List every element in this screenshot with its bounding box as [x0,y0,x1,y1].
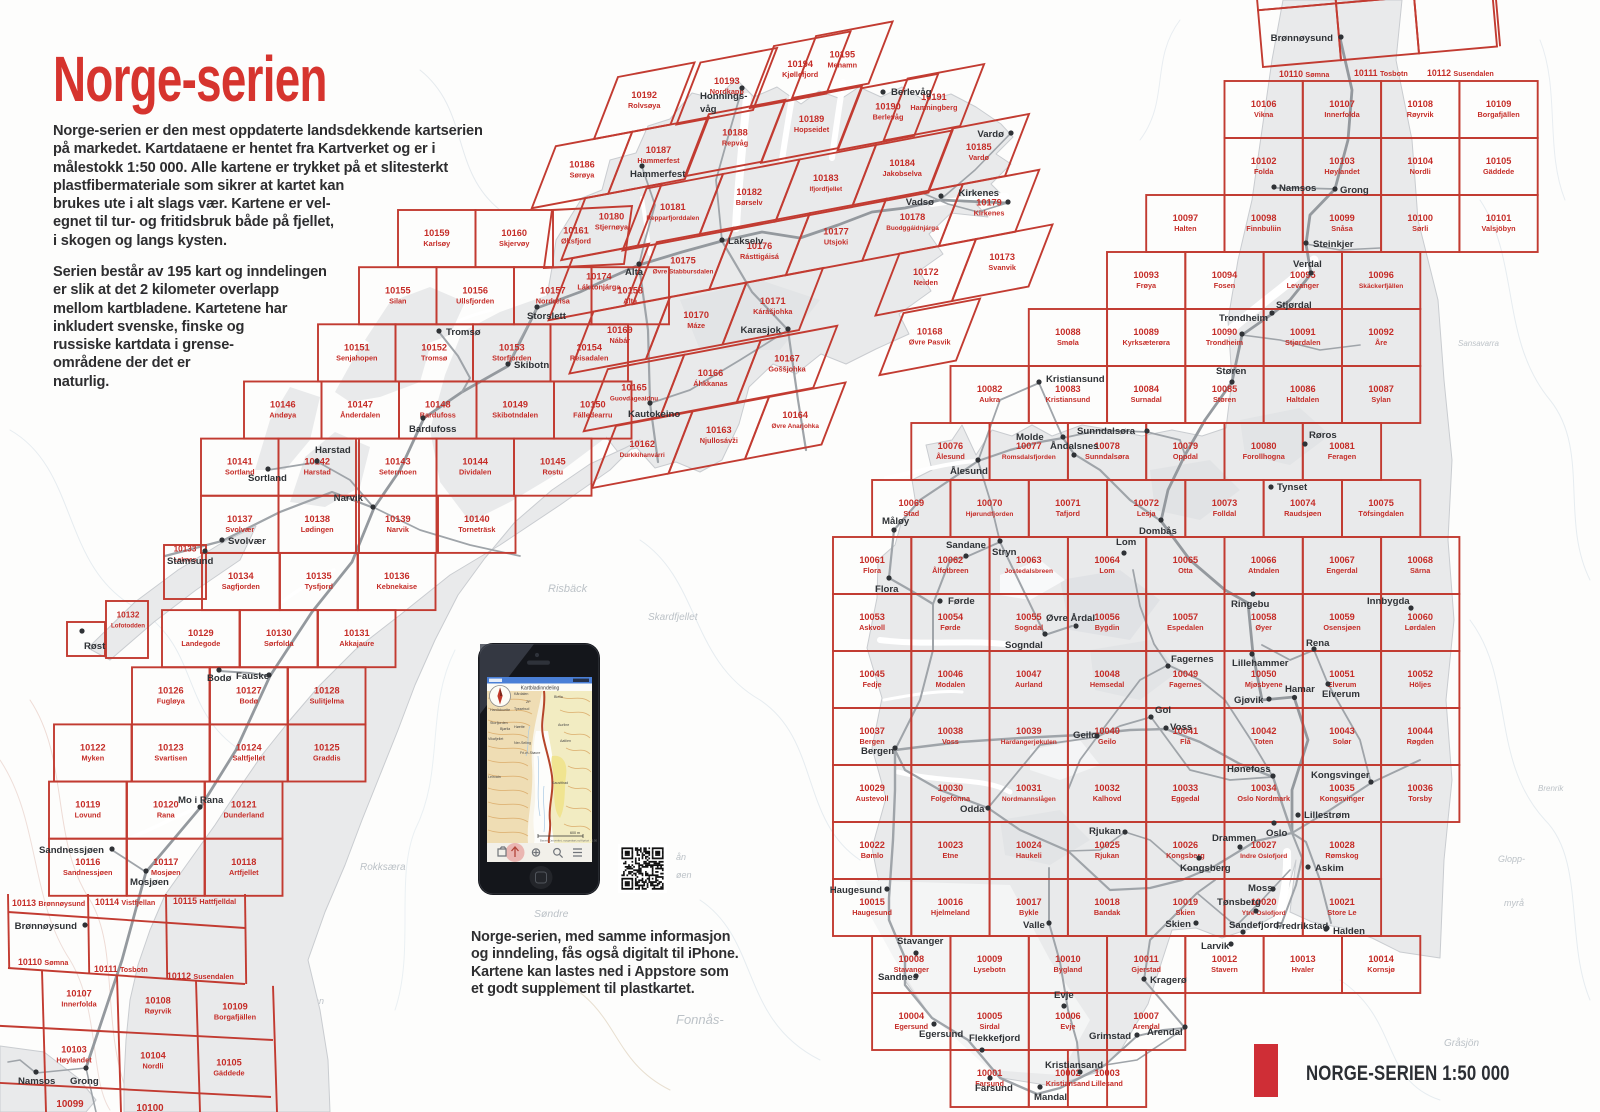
svg-text:10165: 10165 [621,383,647,393]
svg-text:10118: 10118 [231,857,256,867]
svg-text:10128: 10128 [314,685,340,695]
svg-text:10112 Susendalen: 10112 Susendalen [1427,68,1494,78]
svg-text:10021: 10021 [1329,897,1355,907]
svg-text:10117: 10117 [153,857,178,867]
svg-text:Austevoll: Austevoll [856,794,889,803]
svg-text:10033: 10033 [1173,783,1199,793]
svg-text:10109: 10109 [1486,99,1512,109]
svg-text:10093: 10093 [1133,270,1159,280]
svg-text:Oppdal: Oppdal [1173,452,1198,461]
svg-text:Store Le: Store Le [1327,908,1356,917]
svg-text:Vardø: Vardø [969,153,990,162]
svg-text:Fonnås-: Fonnås- [676,1012,724,1027]
svg-text:Skjervøy: Skjervøy [499,239,530,248]
svg-text:10024: 10024 [1016,840,1042,850]
svg-text:Sunndalsøra: Sunndalsøra [1085,452,1130,461]
svg-text:Kalhovd: Kalhovd [1093,794,1122,803]
svg-text:10038: 10038 [938,726,964,736]
svg-text:10143: 10143 [385,457,411,467]
svg-text:10103: 10103 [61,1045,87,1055]
svg-text:Lom: Lom [1116,537,1136,548]
svg-text:Mo i Rana: Mo i Rana [178,795,224,806]
svg-text:Nordli: Nordli [142,1062,163,1071]
svg-text:10089: 10089 [1133,327,1159,337]
svg-text:Førde: Førde [940,623,960,632]
svg-text:10108: 10108 [145,996,171,1006]
svg-text:10149: 10149 [502,400,528,410]
svg-text:10073: 10073 [1212,498,1238,508]
svg-text:Svanvik: Svanvik [988,263,1017,272]
svg-text:10094: 10094 [1212,270,1238,280]
svg-text:10132: 10132 [117,611,140,620]
svg-text:Kristiansund: Kristiansund [1046,395,1091,404]
svg-text:Gol: Gol [1155,705,1171,716]
svg-text:Sansavarra: Sansavarra [1458,339,1499,348]
svg-text:10032: 10032 [1094,783,1120,793]
svg-text:Brenrik: Brenrik [1538,784,1564,793]
svg-text:10140: 10140 [464,514,490,524]
svg-text:Røgden: Røgden [1407,737,1434,746]
svg-text:Innerfolda: Innerfolda [61,1000,97,1009]
svg-text:10155: 10155 [385,285,411,295]
svg-text:Sandnessjøen: Sandnessjøen [63,868,112,877]
svg-text:10195: 10195 [830,49,856,59]
svg-text:Grimstad: Grimstad [1089,1031,1131,1042]
svg-text:Ånderdalen: Ånderdalen [340,411,380,420]
svg-text:Fálledearru: Fálledearru [573,411,612,420]
svg-text:10171: 10171 [760,296,786,306]
svg-text:10066: 10066 [1251,555,1277,565]
svg-text:10163: 10163 [706,425,732,435]
svg-text:Sagfjorden: Sagfjorden [222,582,260,591]
svg-text:10049: 10049 [1173,669,1199,679]
svg-text:Utsjoki: Utsjoki [824,238,848,247]
svg-text:Ullsfjorden: Ullsfjorden [456,296,494,305]
svg-text:Kaustthad: Kaustthad [552,781,568,785]
svg-text:Rokksæra: Rokksæra [360,862,406,873]
svg-text:Akkajaure: Akkajaure [339,639,374,648]
svg-text:10144: 10144 [462,457,488,467]
svg-text:10023: 10023 [938,840,964,850]
svg-text:Nordmannslågen: Nordmannslågen [1002,795,1056,803]
svg-text:Lakselv: Lakselv [728,236,764,247]
svg-text:10016: 10016 [938,897,964,907]
svg-text:Gäddede: Gäddede [213,1069,244,1078]
svg-text:Aatlien: Aatlien [560,739,571,743]
svg-text:10123: 10123 [158,743,184,753]
svg-text:10152: 10152 [421,342,447,352]
svg-text:10055: 10055 [1016,612,1042,622]
svg-text:Folgefonna: Folgefonna [931,794,971,803]
svg-text:Åndalsnes: Åndalsnes [1050,441,1099,452]
svg-text:Måløy: Måløy [882,516,910,527]
svg-text:10018: 10018 [1094,897,1120,907]
svg-text:10135: 10135 [306,571,332,581]
svg-text:10133: 10133 [174,545,197,554]
svg-text:Rolvsøya: Rolvsøya [628,101,661,110]
svg-text:Bodø: Bodø [207,673,232,684]
svg-text:Ifjordfjellet: Ifjordfjellet [809,186,843,193]
svg-text:10060: 10060 [1407,612,1433,622]
svg-text:Haltdalen: Haltdalen [1286,395,1319,404]
svg-text:Silan: Silan [389,296,406,305]
svg-text:Mosjøen: Mosjøen [151,868,181,877]
svg-text:Bandak: Bandak [1094,908,1121,917]
svg-text:10008: 10008 [899,954,925,964]
svg-text:10172: 10172 [913,267,939,277]
svg-text:10043: 10043 [1329,726,1355,736]
svg-text:Töfsingdalen: Töfsingdalen [1358,509,1403,518]
svg-text:Máze: Máze [687,321,705,330]
svg-text:Jostedalsbreen: Jostedalsbreen [1005,568,1053,575]
svg-text:Nordli: Nordli [1410,167,1431,176]
svg-text:10137: 10137 [227,514,253,524]
svg-text:Bømlo: Bømlo [861,851,884,860]
svg-text:10014: 10014 [1368,954,1394,964]
svg-text:Buodggáidnjárga: Buodggáidnjárga [886,225,939,232]
svg-text:10080: 10080 [1251,441,1277,451]
svg-text:10109: 10109 [222,1002,248,1012]
svg-text:Skien: Skien [1165,919,1191,930]
svg-text:Folldal: Folldal [1213,509,1237,518]
svg-text:Tysfjord: Tysfjord [305,582,333,591]
svg-text:600 m: 600 m [570,831,580,835]
svg-text:Rjukan: Rjukan [1095,851,1119,860]
svg-text:Støren: Støren [1213,395,1236,404]
svg-text:Ytre Oslofjord: Ytre Oslofjord [1242,910,1286,917]
svg-text:10162: 10162 [629,439,655,449]
svg-text:Steinkjer: Steinkjer [1313,239,1354,250]
svg-text:Sørli: Sørli [1412,224,1428,233]
svg-text:Røyrvik: Røyrvik [1407,110,1435,119]
svg-text:10022: 10022 [859,840,885,850]
svg-text:Andøya: Andøya [269,411,297,420]
svg-text:Børselv: Børselv [736,198,764,207]
svg-text:Brønnøysund: Brønnøysund [15,921,77,932]
svg-text:Kebnekaise: Kebnekaise [377,582,418,591]
svg-text:10157: 10157 [540,285,566,295]
svg-text:10166: 10166 [698,368,724,378]
svg-text:Halden: Halden [1333,926,1365,937]
svg-text:Røst: Røst [84,641,106,652]
svg-text:Oslo Nordmark: Oslo Nordmark [1237,794,1291,803]
svg-text:10026: 10026 [1173,840,1199,850]
svg-text:10101: 10101 [1486,213,1512,223]
svg-text:Reisadalen: Reisadalen [570,353,609,362]
svg-text:10045: 10045 [859,669,885,679]
svg-text:Glopp-: Glopp- [1498,854,1525,864]
svg-text:Storslett: Storslett [527,311,567,322]
svg-text:Engerdal: Engerdal [1326,566,1357,575]
svg-text:10057: 10057 [1173,612,1199,622]
svg-text:10036: 10036 [1407,783,1433,793]
svg-text:ZP: ZP [526,700,531,704]
svg-text:Tromsø: Tromsø [421,353,448,362]
svg-text:10185: 10185 [966,142,992,152]
svg-text:10050: 10050 [1251,669,1277,679]
svg-text:Solør: Solør [1333,737,1352,746]
svg-text:Saltfjellet: Saltfjellet [233,754,266,763]
svg-text:Goššjohka: Goššjohka [768,365,806,374]
svg-text:10103: 10103 [1329,156,1355,166]
svg-text:Dombås: Dombås [1139,526,1177,537]
svg-text:10100: 10100 [1407,213,1433,223]
svg-text:Åre: Åre [1375,338,1387,347]
svg-text:Verdal: Verdal [1293,259,1322,270]
svg-text:10139: 10139 [385,514,411,524]
svg-text:Aurland: Aurland [1015,680,1043,689]
svg-text:10047: 10047 [1016,669,1042,679]
svg-text:Stjørdalen: Stjørdalen [1285,338,1321,347]
svg-text:10065: 10065 [1173,555,1199,565]
svg-text:Leirvatn: Leirvatn [488,775,501,779]
svg-text:Etne: Etne [942,851,958,860]
svg-text:10136: 10136 [384,571,410,581]
svg-text:10129: 10129 [188,628,214,638]
svg-text:Haukeli: Haukeli [1016,851,1042,860]
svg-text:Gråsjön: Gråsjön [1444,1037,1479,1049]
svg-text:10034: 10034 [1251,783,1277,793]
svg-text:10058: 10058 [1251,612,1277,622]
svg-text:Aurline: Aurline [558,723,569,727]
svg-text:Vikna: Vikna [1254,110,1274,119]
svg-text:10107: 10107 [66,989,92,999]
svg-text:10096: 10096 [1368,270,1394,280]
svg-text:Elverum: Elverum [1322,689,1360,700]
svg-text:10168: 10168 [917,326,943,336]
svg-text:Hjørundfjorden: Hjørundfjorden [966,511,1014,518]
svg-text:10097: 10097 [1173,213,1199,223]
svg-text:Berlevåg: Berlevåg [873,113,904,122]
svg-text:10116: 10116 [75,857,100,867]
svg-text:Bodø: Bodø [239,696,258,705]
svg-text:Stjørdal: Stjørdal [1276,300,1312,311]
svg-text:Sørøya: Sørøya [570,171,596,180]
svg-text:10011: 10011 [1134,954,1159,964]
svg-text:Hemsedal: Hemsedal [1090,680,1124,689]
svg-text:Rjukan: Rjukan [1089,826,1121,837]
svg-text:Kárášjohka: Kárášjohka [753,307,793,316]
svg-text:10013: 10013 [1290,954,1316,964]
svg-text:Osensjøen: Osensjøen [1323,623,1360,632]
svg-text:Skibotn: Skibotn [514,360,549,371]
svg-text:10125: 10125 [314,743,340,753]
svg-text:Stjernøya: Stjernøya [595,222,629,231]
svg-text:Myken: Myken [81,754,104,763]
svg-text:Sortland: Sortland [248,473,287,484]
svg-text:10037: 10037 [859,726,885,736]
svg-text:Rena: Rena [1306,638,1330,649]
svg-text:Bygdin: Bygdin [1095,623,1120,632]
svg-text:Skäckerfjällen: Skäckerfjällen [1359,283,1403,290]
svg-text:Kirkenes: Kirkenes [958,188,999,199]
svg-text:Kjøllefjord: Kjøllefjord [782,70,818,79]
svg-text:10147: 10147 [347,400,373,410]
svg-text:Mehamn: Mehamn [827,60,857,69]
svg-text:Hamningberg: Hamningberg [910,103,957,112]
svg-text:10069: 10069 [899,498,925,508]
svg-text:Støren: Støren [1216,366,1247,377]
svg-text:Namsos: Namsos [18,1076,55,1087]
svg-text:10193: 10193 [714,76,740,86]
svg-text:10126: 10126 [158,685,184,695]
svg-text:Evje: Evje [1054,990,1074,1001]
svg-text:Høylandet: Høylandet [1324,167,1360,176]
svg-text:Halten: Halten [1174,224,1196,233]
svg-text:10006: 10006 [1055,1011,1081,1021]
svg-text:10061: 10061 [859,555,885,565]
svg-text:Narvik: Narvik [334,493,364,504]
svg-text:10108: 10108 [1407,99,1433,109]
svg-text:Landegode: Landegode [181,639,220,648]
svg-text:Bykle: Bykle [1019,908,1038,917]
svg-text:Sandnessjøen: Sandnessjøen [39,845,104,856]
svg-text:Sandane: Sandane [946,540,986,551]
svg-text:Stryn: Stryn [992,547,1017,558]
svg-text:10028: 10028 [1329,840,1355,850]
svg-text:Gjerstad: Gjerstad [1131,965,1161,974]
svg-text:10170: 10170 [683,310,709,320]
svg-text:Brønnøysund: Brønnøysund [1271,33,1333,44]
svg-text:Biella: Biella [554,695,563,699]
svg-text:10051: 10051 [1329,669,1355,679]
svg-text:Karasjok: Karasjok [740,325,781,336]
svg-text:Ålfotbreen: Ålfotbreen [932,566,969,575]
svg-text:10076: 10076 [938,441,964,451]
svg-text:10187: 10187 [646,145,672,155]
svg-text:Kirkenes: Kirkenes [974,209,1005,218]
svg-text:Ringebu: Ringebu [1231,599,1270,610]
svg-text:Mosjøen: Mosjøen [130,877,169,888]
svg-text:10111 Tosbotn: 10111 Tosbotn [94,964,148,974]
svg-text:10015: 10015 [859,897,885,907]
svg-text:10188: 10188 [722,128,748,138]
svg-text:Grong: Grong [70,1076,99,1087]
svg-text:10141: 10141 [227,457,253,467]
svg-text:10025: 10025 [1094,840,1120,850]
svg-text:10106: 10106 [1251,99,1277,109]
svg-text:Lofotodden: Lofotodden [111,623,145,630]
svg-text:Sandnes: Sandnes [878,972,918,983]
svg-text:Jakobselva: Jakobselva [883,169,923,178]
svg-text:Folda: Folda [1254,167,1274,176]
svg-text:Indre Oslofjord: Indre Oslofjord [1240,853,1287,860]
svg-text:Njullosávži: Njullosávži [700,436,738,445]
svg-text:10145: 10145 [540,457,566,467]
svg-text:10127: 10127 [236,685,262,695]
svg-text:10167: 10167 [774,354,800,364]
svg-text:Svolvær: Svolvær [228,536,266,547]
svg-text:Namsos: Namsos [1279,183,1316,194]
svg-text:Molde: Molde [1016,432,1044,443]
svg-text:Gjøvik: Gjøvik [1234,695,1264,706]
svg-text:Nábár: Nábár [609,336,630,345]
svg-text:Rostu: Rostu [542,468,563,477]
svg-text:10180: 10180 [599,211,625,221]
svg-text:Førde: Førde [948,596,975,607]
svg-text:10177: 10177 [823,227,849,237]
svg-text:10150: 10150 [580,400,606,410]
svg-text:10072: 10072 [1133,498,1159,508]
svg-text:Kornsjø: Kornsjø [1367,965,1395,974]
svg-text:Røyrvik: Røyrvik [145,1007,173,1016]
svg-text:10175: 10175 [670,256,696,266]
svg-text:10074: 10074 [1290,498,1316,508]
svg-text:10113 Brønnøysund: 10113 Brønnøysund [12,898,85,908]
svg-text:Skien: Skien [1176,908,1195,917]
svg-text:Elverum: Elverum [1328,680,1357,689]
svg-text:10099: 10099 [1329,213,1355,223]
svg-text:10148: 10148 [425,400,451,410]
svg-text:Höljes: Höljes [1409,680,1431,689]
svg-text:10153: 10153 [499,342,525,352]
svg-text:10115 Hattfjelldal: 10115 Hattfjelldal [173,896,236,906]
svg-text:Harstad: Harstad [304,468,331,477]
svg-text:Rásttigáisá: Rásttigáisá [740,252,780,261]
svg-text:Toten: Toten [1254,737,1273,746]
svg-text:Hardangerjøkulen: Hardangerjøkulen [1001,739,1057,746]
svg-text:Lillestrøm: Lillestrøm [1304,810,1350,821]
svg-text:Valsjöbyn: Valsjöbyn [1482,224,1516,233]
svg-text:Kristiansand: Kristiansand [1045,1060,1103,1071]
svg-text:Svolvær: Svolvær [225,525,254,534]
svg-text:10017: 10017 [1016,897,1042,907]
svg-text:Espedalen: Espedalen [1167,623,1204,632]
svg-text:Voss: Voss [1170,722,1192,733]
svg-text:10012: 10012 [1212,954,1238,964]
svg-text:Nordreisa: Nordreisa [536,296,571,305]
svg-text:10090: 10090 [1212,327,1238,337]
svg-text:10182: 10182 [736,187,762,197]
svg-text:Hammerfest: Hammerfest [637,156,680,165]
svg-text:Ner-Seling: Ner-Seling [514,741,531,745]
svg-text:Bjørlia: Bjørlia [500,727,510,731]
svg-text:Atndalen: Atndalen [1248,566,1279,575]
svg-text:Torsby: Torsby [1408,794,1433,803]
svg-text:Sunndalsøra: Sunndalsøra [1077,426,1136,437]
svg-text:Hønefoss: Hønefoss [1227,764,1271,775]
svg-text:Neiden: Neiden [914,278,938,287]
svg-text:Sogndal: Sogndal [1014,623,1043,632]
svg-text:Øvre Pasvik: Øvre Pasvik [909,337,952,346]
svg-text:10179: 10179 [976,198,1002,208]
svg-text:Fredrikstad: Fredrikstad [1276,921,1328,932]
svg-text:10079: 10079 [1173,441,1199,451]
svg-text:Øvre Stabbursdalen: Øvre Stabbursdalen [653,269,714,276]
svg-text:Stamsund: Stamsund [167,556,214,567]
svg-text:10119: 10119 [75,800,100,810]
svg-text:Senjahopen: Senjahopen [336,353,377,362]
svg-text:Odda: Odda [960,804,985,815]
svg-text:Feragen: Feragen [1328,452,1356,461]
svg-text:Kongsberg: Kongsberg [1180,863,1231,874]
svg-text:10048: 10048 [1094,669,1120,679]
svg-text:10007: 10007 [1133,1011,1159,1021]
svg-text:10164: 10164 [782,410,808,420]
svg-text:10098: 10098 [1251,213,1277,223]
svg-text:Artfjellet: Artfjellet [229,868,259,877]
svg-text:10084: 10084 [1133,384,1159,394]
svg-text:Lysebotn: Lysebotn [974,965,1006,974]
svg-text:10110 Sømna: 10110 Sømna [1279,69,1330,79]
svg-text:Grong: Grong [1340,185,1369,196]
svg-text:10154: 10154 [576,342,602,352]
svg-text:Fauske: Fauske [236,671,269,682]
svg-text:Lákkonjárga: Lákkonjárga [577,282,621,291]
svg-text:Valle: Valle [1023,920,1045,931]
svg-text:Kongsvinger: Kongsvinger [1311,770,1370,781]
svg-text:10104: 10104 [1407,156,1433,166]
